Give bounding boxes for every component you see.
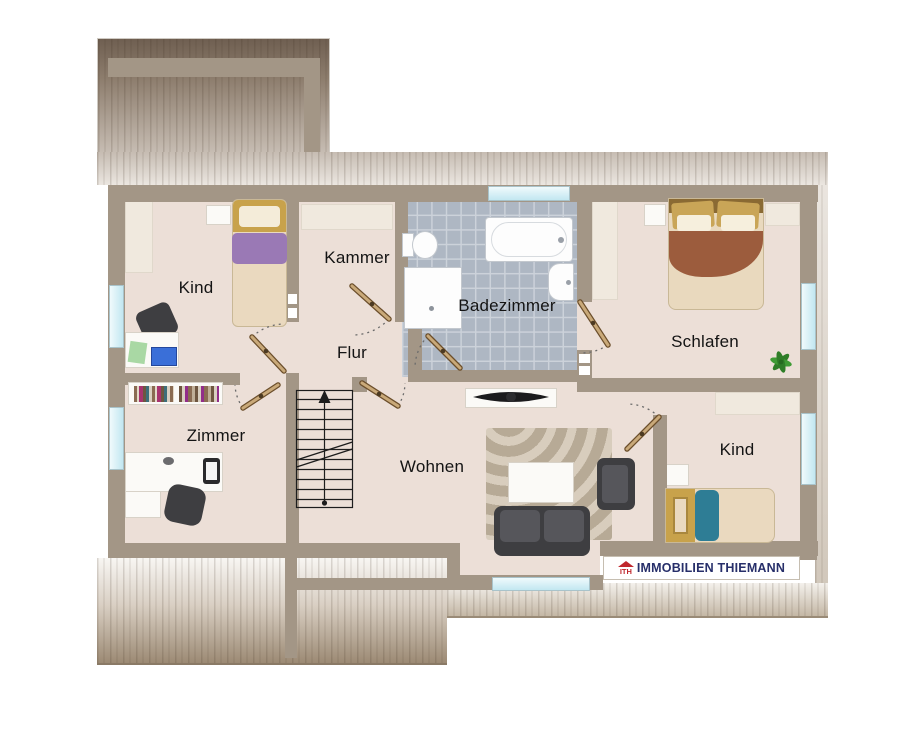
wall-stairs-left <box>286 373 299 543</box>
desk-zimmer-return <box>125 492 161 518</box>
bed-kind-top-left <box>232 199 287 327</box>
window-kind-bottom-right <box>801 413 816 485</box>
nightstand-kind-top-left <box>206 205 231 225</box>
wall-bottom-left-section <box>108 543 460 558</box>
roof-dormer-top-left <box>97 38 330 152</box>
tablet-screen <box>206 462 217 480</box>
skylight-window-bathroom <box>488 186 570 201</box>
room-label-wohnen: Wohnen <box>400 457 464 477</box>
bed-headboard-inner <box>673 497 688 534</box>
bathtub <box>485 217 573 262</box>
toilet-bowl <box>412 231 438 259</box>
shower <box>404 267 462 329</box>
wardrobe-schlafen-left <box>592 198 618 300</box>
bookshelf-zimmer <box>128 382 223 405</box>
door-frame-schlafen <box>579 354 590 363</box>
wardrobe-kind-bottom-right <box>715 392 800 415</box>
armchair <box>597 458 635 510</box>
wall-bad-bottom <box>408 370 577 382</box>
door-frame-kammer <box>288 294 297 304</box>
wall-bad-lower-left <box>408 322 422 372</box>
window-zimmer <box>109 407 124 470</box>
bathtub-faucet <box>558 237 564 243</box>
wall-kind-kammer <box>286 202 299 322</box>
ith-house-icon: ITH <box>618 561 634 576</box>
door-frame-kammer-2 <box>288 308 297 318</box>
wall-bad-schlafen <box>577 185 592 302</box>
nightstand-kind-bottom-right <box>664 464 689 486</box>
wardrobe-schlafen-right <box>765 203 800 226</box>
mouse-icon <box>163 457 174 465</box>
shelf-kammer <box>301 204 393 230</box>
pillow-white-right <box>721 215 755 231</box>
sofa-cushion-left <box>500 510 540 542</box>
brand-name: IMMOBILIEN THIEMANN <box>637 561 785 575</box>
skylight-window-wohnen <box>492 577 590 591</box>
ith-letters: ITH <box>620 568 632 576</box>
roof-wall-horizontal-bottom <box>297 578 447 590</box>
coffee-table <box>508 462 574 503</box>
brand-banner: ITH IMMOBILIEN THIEMANN <box>603 556 800 580</box>
blanket-brown <box>669 231 763 277</box>
books-row <box>134 386 174 402</box>
bed-pillow-teal <box>695 490 719 541</box>
wardrobe-kind-top-left <box>125 199 153 273</box>
room-label-badezimmer: Badezimmer <box>458 296 555 316</box>
room-label-flur: Flur <box>337 343 367 363</box>
window-kind-top-left <box>109 285 124 348</box>
tv-sideboard <box>465 388 557 408</box>
paper-green <box>128 341 148 364</box>
sink-faucet <box>566 280 571 285</box>
room-label-kammer: Kammer <box>324 248 389 268</box>
sofa <box>494 506 590 556</box>
room-label-zimmer: Zimmer <box>187 426 246 446</box>
laptop-blue <box>151 347 177 366</box>
bed-kind-bottom-right <box>665 488 775 543</box>
bathtub-inner <box>491 222 567 257</box>
room-label-kind-top-left: Kind <box>179 278 214 298</box>
bed-blanket-purple <box>232 233 287 264</box>
dormer-wall-horizontal <box>108 58 304 77</box>
window-schlafen <box>801 283 816 350</box>
pillow-white-left <box>677 215 711 231</box>
roof-wall-vertical-bottom <box>285 558 297 658</box>
floor-plan: Kind Kammer Badezimmer Schlafen Flur Zim… <box>0 0 920 747</box>
nightstand-schlafen-left <box>644 204 666 226</box>
door-frame-schlafen-2 <box>579 366 590 375</box>
armchair-cushion <box>602 465 628 503</box>
room-label-schlafen: Schlafen <box>671 332 739 352</box>
wall-bottom-right-section <box>600 541 818 556</box>
ith-roof-icon <box>618 561 634 567</box>
roof-band-top <box>97 152 828 185</box>
bed-pillow <box>239 206 280 227</box>
wall-schlafen-bottom <box>577 378 813 392</box>
toilet <box>402 231 438 259</box>
books-row-2 <box>179 386 219 402</box>
double-bed-schlafen <box>668 198 764 310</box>
desk-kind-top-left <box>125 332 179 368</box>
wall-stairs-right-stub <box>352 377 367 392</box>
sofa-cushion-right <box>544 510 584 542</box>
room-label-kind-bottom-right: Kind <box>720 440 755 460</box>
roof-block-bottom-left <box>97 558 447 665</box>
shower-drain <box>429 306 434 311</box>
